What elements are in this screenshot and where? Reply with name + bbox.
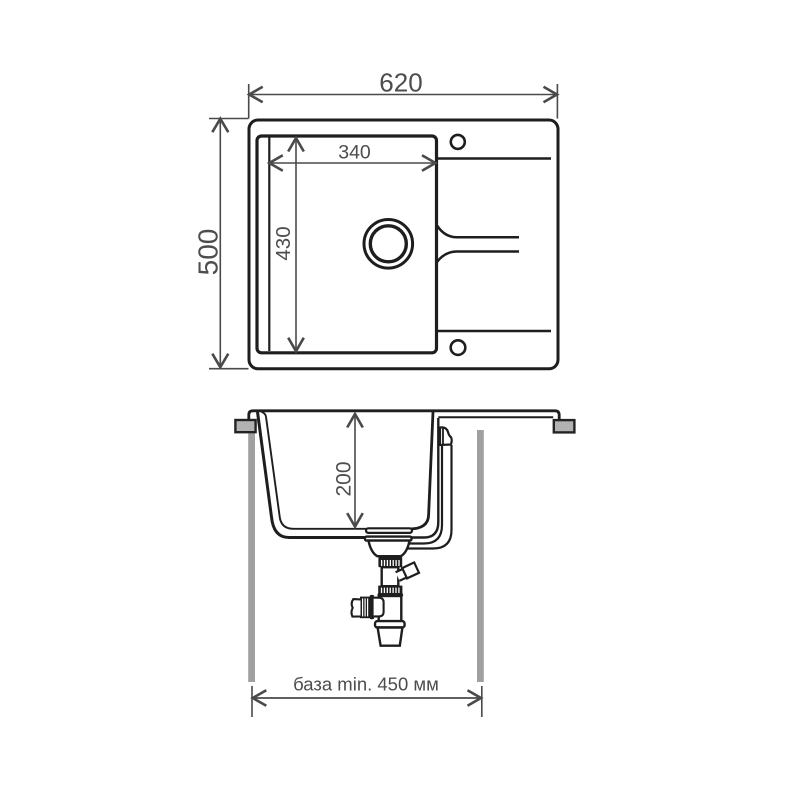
- svg-text:620: 620: [379, 68, 422, 98]
- svg-text:430: 430: [272, 226, 295, 260]
- svg-text:база min. 450 мм: база min. 450 мм: [293, 674, 439, 695]
- svg-text:500: 500: [193, 229, 224, 276]
- svg-text:340: 340: [338, 142, 371, 164]
- svg-text:200: 200: [333, 461, 356, 496]
